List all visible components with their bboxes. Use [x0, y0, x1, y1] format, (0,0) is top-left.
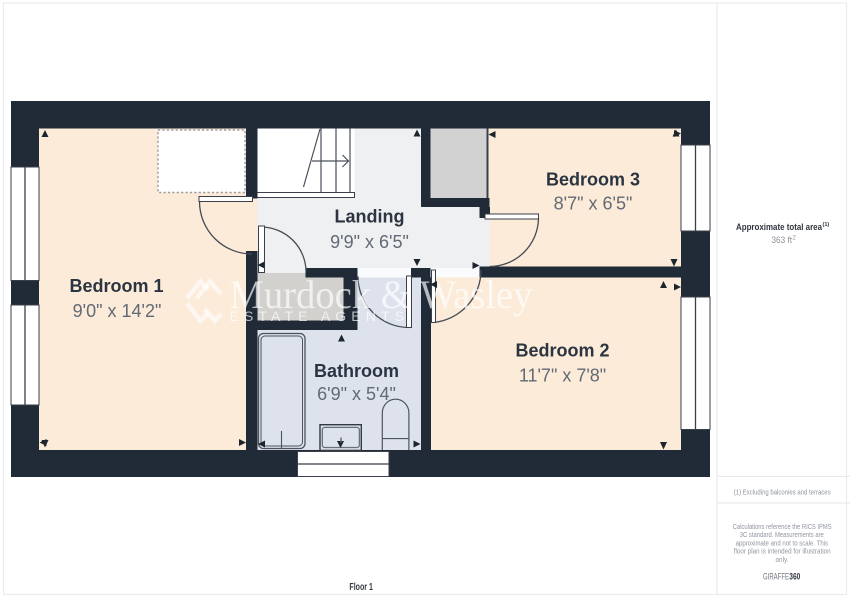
- svg-text:Bedroom 3: Bedroom 3: [546, 170, 640, 190]
- svg-text:Bathroom: Bathroom: [314, 361, 399, 381]
- svg-text:11'7" x 7'8": 11'7" x 7'8": [519, 366, 606, 386]
- svg-text:Approximate total area: Approximate total area: [736, 222, 823, 232]
- svg-text:9'9" x 6'5": 9'9" x 6'5": [330, 232, 409, 252]
- svg-text:360: 360: [789, 571, 800, 581]
- svg-text:Bedroom 2: Bedroom 2: [515, 341, 609, 361]
- svg-text:GIRAFFE: GIRAFFE: [763, 571, 789, 581]
- svg-text:(1): (1): [823, 222, 830, 228]
- svg-text:Floor 1: Floor 1: [349, 582, 373, 593]
- svg-text:Landing: Landing: [335, 207, 405, 227]
- svg-text:363 ft: 363 ft: [772, 235, 793, 245]
- svg-text:2: 2: [793, 236, 797, 242]
- svg-text:ESTATE AGENTS: ESTATE AGENTS: [230, 308, 409, 324]
- svg-text:8'7" x 6'5": 8'7" x 6'5": [554, 194, 633, 214]
- svg-text:6'9" x 5'4": 6'9" x 5'4": [317, 384, 396, 404]
- svg-text:(1) Excluding balconies and te: (1) Excluding balconies and terraces: [734, 488, 831, 497]
- svg-text:9'0" x 14'2": 9'0" x 14'2": [73, 301, 162, 321]
- svg-text:only.: only.: [776, 555, 789, 564]
- svg-text:Bedroom 1: Bedroom 1: [69, 276, 163, 296]
